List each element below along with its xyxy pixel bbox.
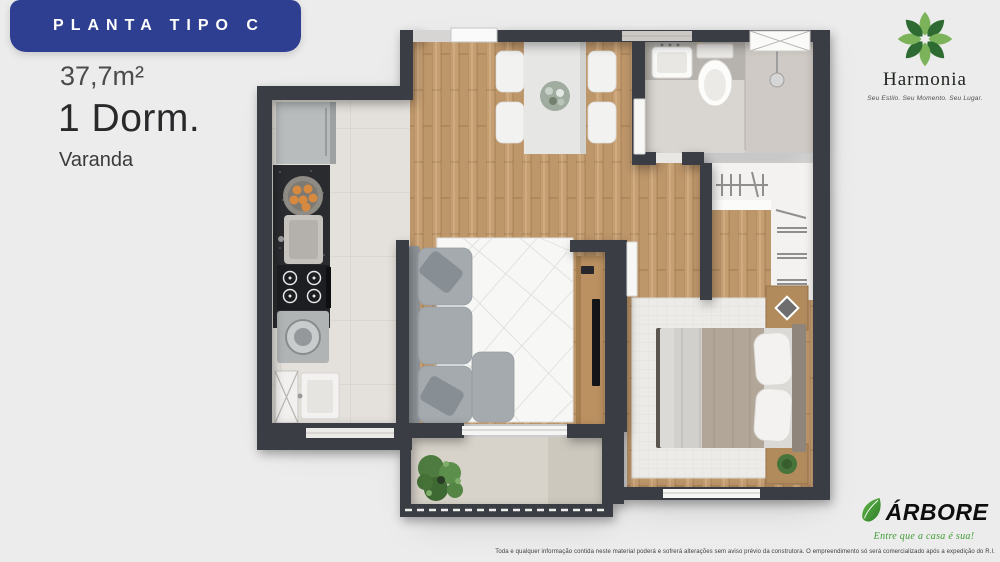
tv — [592, 299, 600, 386]
kitchen-faucet — [278, 236, 284, 242]
harmonia-flower-icon — [896, 10, 954, 68]
closet-group — [712, 163, 813, 300]
harmonia-name: Harmonia — [852, 69, 998, 91]
harmonia-tagline: Seu Estilo. Seu Momento. Seu Lugar. — [852, 95, 998, 102]
entry-door — [451, 28, 497, 42]
plan-type-label: PLANTA TIPO C — [46, 17, 265, 35]
arbore-leaf-icon — [860, 496, 884, 524]
spec-feature: Varanda — [59, 150, 133, 170]
fridge — [276, 102, 336, 164]
bathroom-door — [634, 99, 645, 154]
spec-area: 37,7m² — [60, 63, 144, 90]
kitchen-group — [273, 102, 339, 423]
arbore-slogan: Entre que a casa é sua! — [848, 531, 1000, 542]
bed-pillow — [753, 332, 793, 386]
spec-bedrooms: 1 Dorm. — [58, 99, 200, 138]
harmonia-logo: Harmonia Seu Estilo. Seu Momento. Seu Lu… — [852, 10, 998, 102]
headboard — [792, 324, 806, 452]
arbore-logo: ÁRBORE Entre que a casa é sua! — [848, 496, 1000, 542]
bathroom-door-threshold — [656, 153, 682, 163]
shower-floor — [745, 42, 813, 153]
floorplan — [0, 0, 1000, 562]
bed-pillow — [753, 388, 793, 442]
bedroom-door — [627, 242, 637, 296]
footer-disclaimer: Toda e qualquer informação contida neste… — [495, 549, 995, 555]
table-centerpiece — [540, 81, 570, 111]
toilet-tank — [697, 44, 733, 58]
arbore-name: ÁRBORE — [886, 501, 989, 524]
cooktop — [277, 265, 330, 310]
shower-head — [770, 73, 784, 87]
plan-type-banner: PLANTA TIPO C — [10, 0, 301, 52]
